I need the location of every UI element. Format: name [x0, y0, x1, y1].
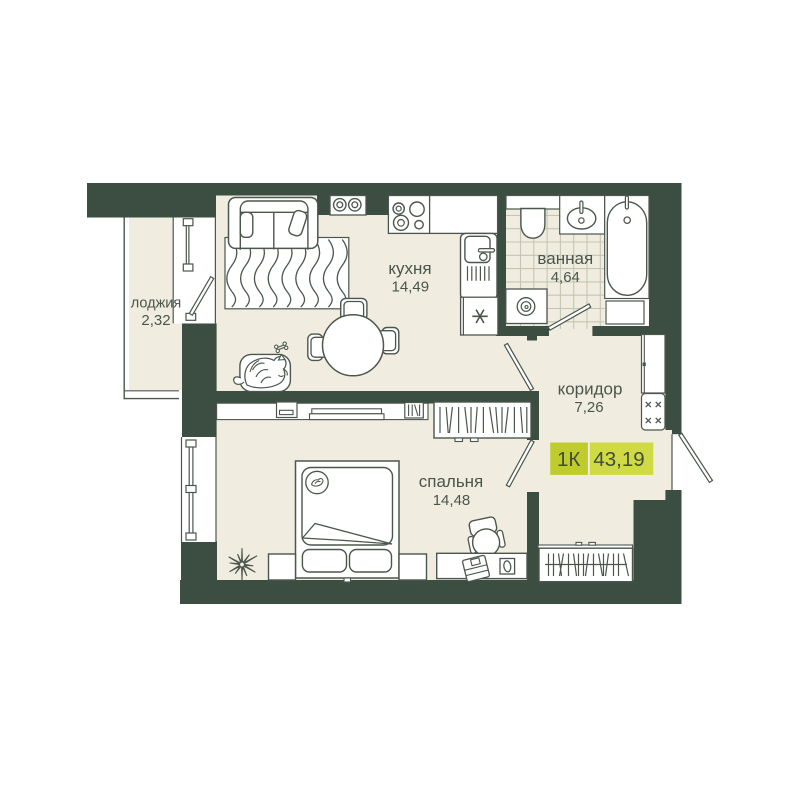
svg-text:43,19: 43,19 — [593, 448, 644, 471]
svg-text:кухня: кухня — [388, 259, 431, 278]
svg-text:спальня: спальня — [419, 472, 484, 491]
svg-text:14,49: 14,49 — [392, 279, 430, 296]
svg-text:лоджия: лоджия — [131, 296, 181, 312]
svg-text:14,48: 14,48 — [433, 492, 471, 509]
svg-text:2,32: 2,32 — [141, 312, 170, 329]
svg-text:ванная: ванная — [537, 249, 593, 268]
svg-text:коридор: коридор — [558, 380, 623, 399]
svg-text:7,26: 7,26 — [574, 399, 603, 416]
svg-text:1К: 1К — [557, 448, 580, 471]
svg-text:4,64: 4,64 — [551, 269, 580, 286]
